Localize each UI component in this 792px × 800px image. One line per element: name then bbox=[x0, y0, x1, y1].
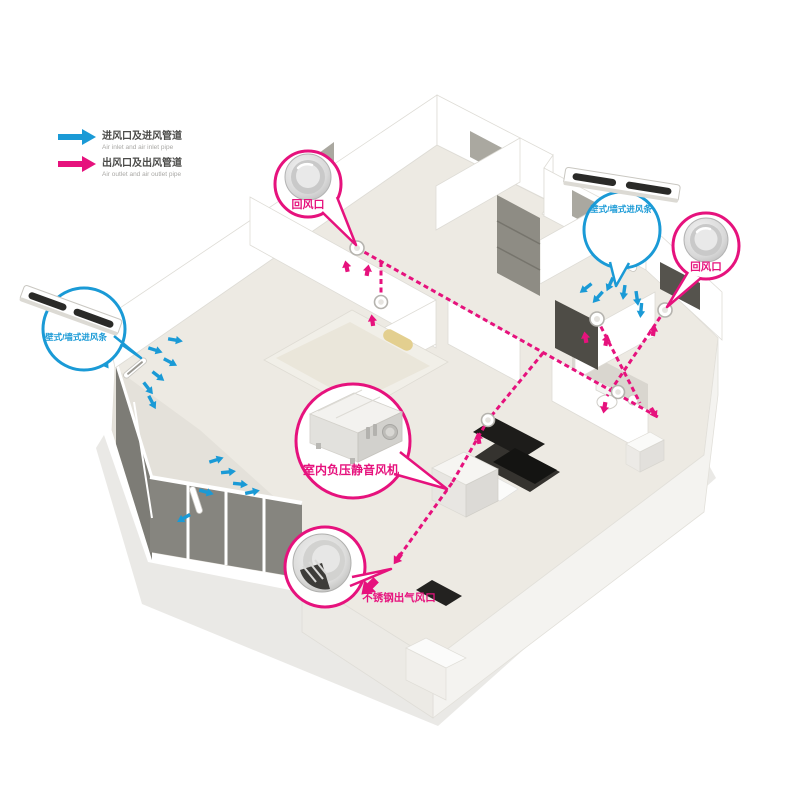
steel-outlet-icon bbox=[293, 534, 351, 592]
diagram-canvas: 回风口 壁式/墙式进风条 回风口 bbox=[0, 0, 792, 800]
legend-item-inlet: 进风口及进风管道 Air inlet and air inlet pipe bbox=[58, 129, 182, 151]
outlet-arrow-icon bbox=[58, 156, 96, 172]
inlet-arrow-icon bbox=[58, 129, 96, 145]
legend-inlet-en: Air inlet and air inlet pipe bbox=[102, 144, 174, 151]
callout-label: 壁式/墙式进风条 bbox=[45, 332, 107, 342]
callout-label: 回风口 bbox=[690, 261, 722, 273]
legend-outlet-zh: 出风口及出风管道 bbox=[102, 156, 182, 169]
round-diffuser-icon bbox=[285, 154, 331, 200]
callout-label: 回风口 bbox=[292, 197, 325, 211]
legend-outlet-en: Air outlet and air outlet pipe bbox=[102, 171, 182, 178]
ventilation-diagram: 回风口 壁式/墙式进风条 回风口 bbox=[0, 0, 792, 800]
callout-label: 不锈钢出气风口 bbox=[362, 591, 436, 604]
callout-label: 室内负压静音风机 bbox=[303, 462, 399, 477]
legend-item-outlet: 出风口及出风管道 Air outlet and air outlet pipe bbox=[58, 156, 182, 178]
round-diffuser-icon bbox=[684, 218, 728, 262]
callout-label: 壁式/墙式进风条 bbox=[590, 204, 652, 214]
legend-inlet-zh: 进风口及进风管道 bbox=[102, 129, 182, 142]
legend: 进风口及进风管道 Air inlet and air inlet pipe 出风… bbox=[58, 129, 182, 178]
